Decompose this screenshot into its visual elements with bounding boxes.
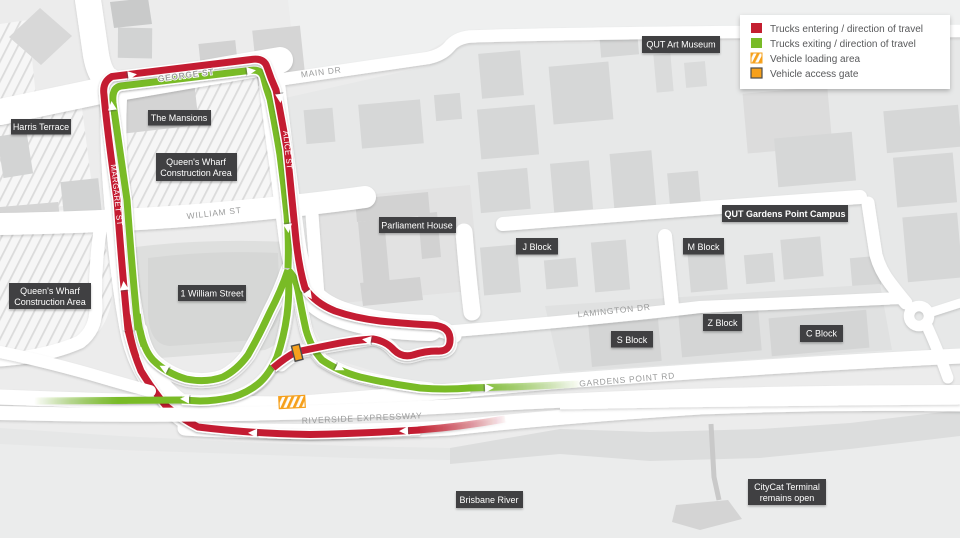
svg-text:The Mansions: The Mansions: [151, 113, 208, 123]
svg-text:CityCat Terminal: CityCat Terminal: [754, 482, 820, 492]
svg-text:remains open: remains open: [760, 493, 815, 503]
svg-text:Z Block: Z Block: [707, 318, 738, 328]
svg-text:Harris Terrace: Harris Terrace: [13, 122, 69, 132]
svg-text:J Block: J Block: [522, 242, 552, 252]
svg-text:Queen's Wharf: Queen's Wharf: [20, 286, 80, 296]
svg-text:Construction Area: Construction Area: [160, 168, 232, 178]
svg-text:Trucks exiting / direction of: Trucks exiting / direction of travel: [770, 39, 916, 50]
svg-text:Queen's Wharf: Queen's Wharf: [166, 157, 226, 167]
svg-text:M Block: M Block: [687, 242, 720, 252]
svg-text:QUT Art Museum: QUT Art Museum: [646, 40, 715, 50]
svg-text:Parliament House: Parliament House: [381, 221, 453, 231]
svg-text:Vehicle loading area: Vehicle loading area: [770, 54, 861, 65]
svg-text:QUT Gardens Point Campus: QUT Gardens Point Campus: [724, 209, 845, 219]
svg-text:C Block: C Block: [806, 329, 838, 339]
svg-text:Construction Area: Construction Area: [14, 297, 86, 307]
svg-text:S Block: S Block: [617, 335, 648, 345]
svg-text:Vehicle access gate: Vehicle access gate: [770, 69, 859, 80]
svg-text:1 William Street: 1 William Street: [180, 289, 244, 299]
svg-text:Brisbane River: Brisbane River: [459, 495, 518, 505]
svg-text:Trucks entering / direction of: Trucks entering / direction of travel: [770, 24, 923, 35]
